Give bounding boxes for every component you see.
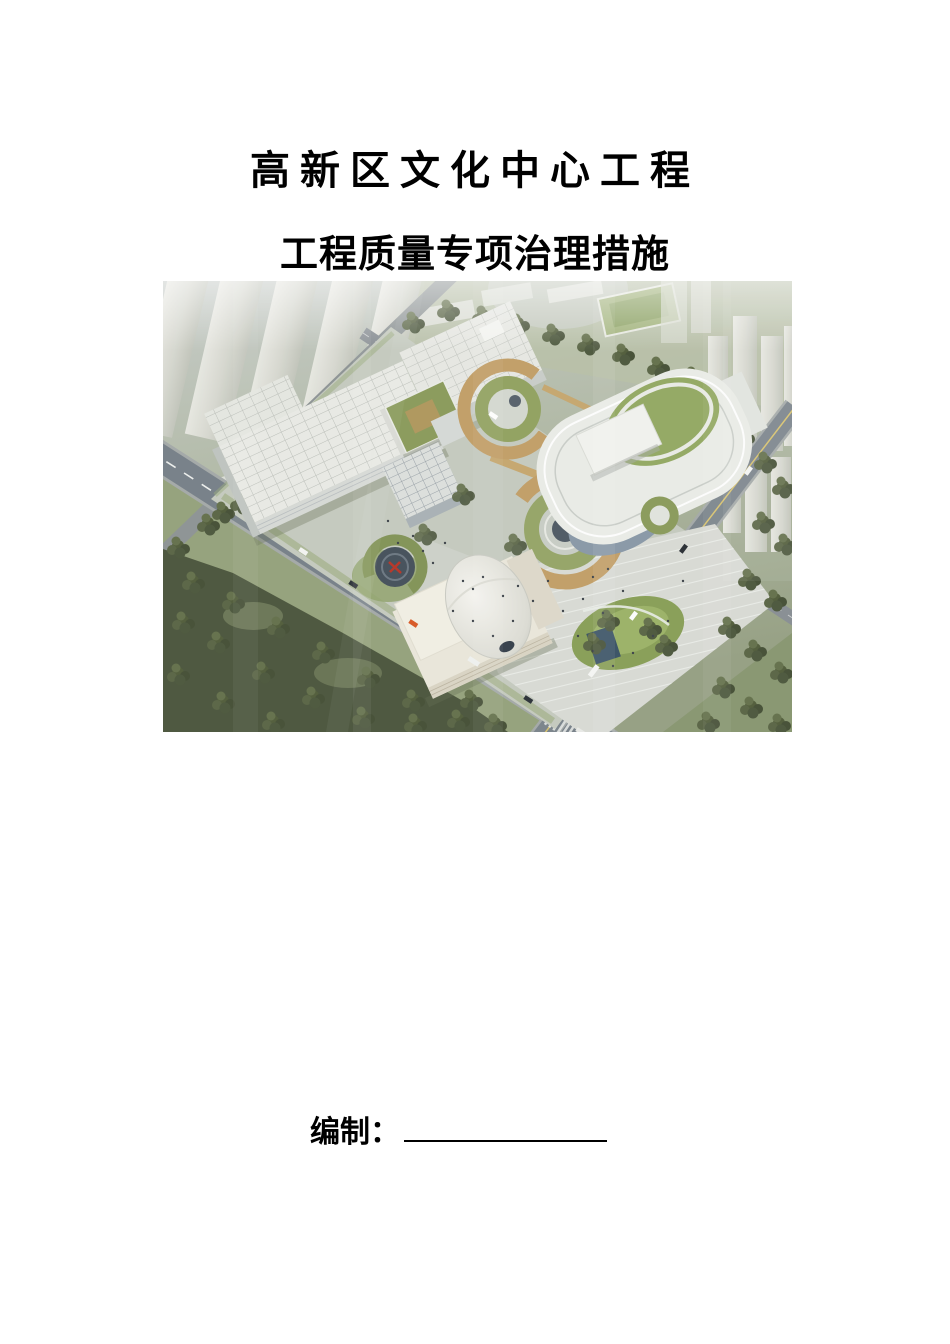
author-line: 编制： <box>310 1110 607 1152</box>
aerial-rendering-svg <box>163 281 792 732</box>
page-title: 高新区文化中心工程 <box>0 151 950 191</box>
aerial-rendering-image <box>163 281 792 732</box>
page-subtitle: 工程质量专项治理措施 <box>0 236 950 274</box>
document-page: 高新区文化中心工程 工程质量专项治理措施 <box>0 0 950 1344</box>
author-blank-line[interactable] <box>404 1110 607 1142</box>
author-label: 编制： <box>310 1116 400 1149</box>
